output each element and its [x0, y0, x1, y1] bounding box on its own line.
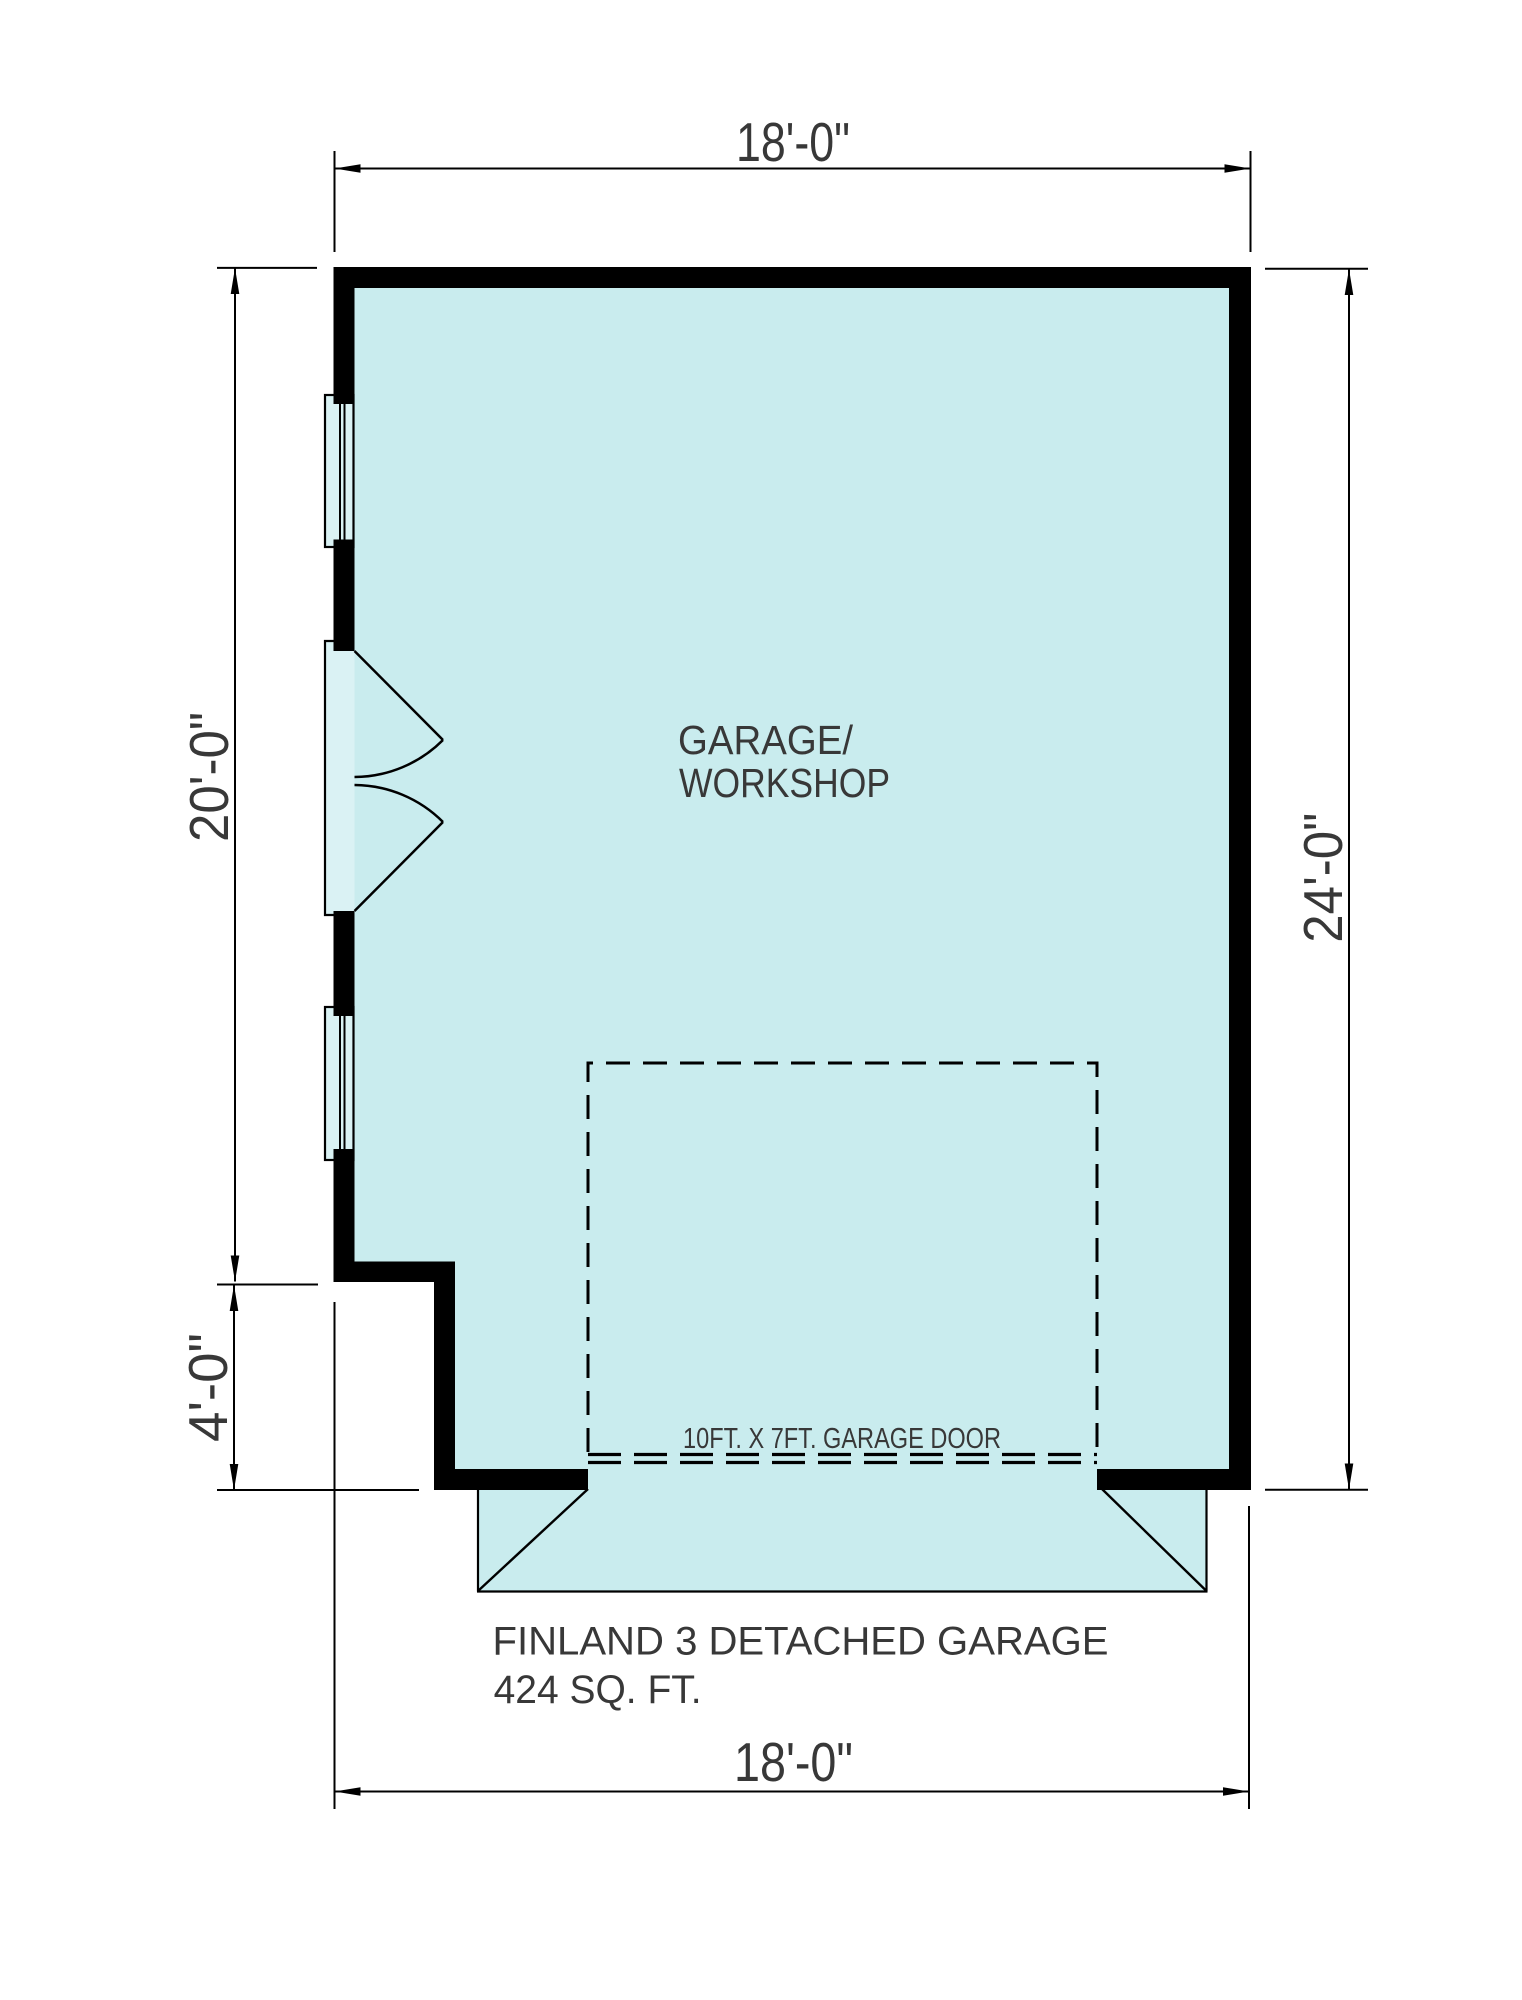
- svg-text:FINLAND 3 DETACHED GARAGE: FINLAND 3 DETACHED GARAGE: [493, 1620, 1109, 1664]
- svg-text:18'-0": 18'-0": [734, 1731, 853, 1793]
- svg-text:24'-0": 24'-0": [1292, 813, 1354, 943]
- svg-text:18'-0": 18'-0": [736, 111, 850, 173]
- svg-text:GARAGE/: GARAGE/: [678, 717, 854, 763]
- svg-text:4'-0": 4'-0": [177, 1333, 239, 1442]
- svg-text:10FT. X 7FT. GARAGE DOOR: 10FT. X 7FT. GARAGE DOOR: [683, 1423, 1001, 1455]
- svg-text:424 SQ. FT.: 424 SQ. FT.: [494, 1668, 702, 1712]
- svg-text:20'-0": 20'-0": [178, 712, 240, 842]
- svg-text:WORKSHOP: WORKSHOP: [679, 760, 890, 806]
